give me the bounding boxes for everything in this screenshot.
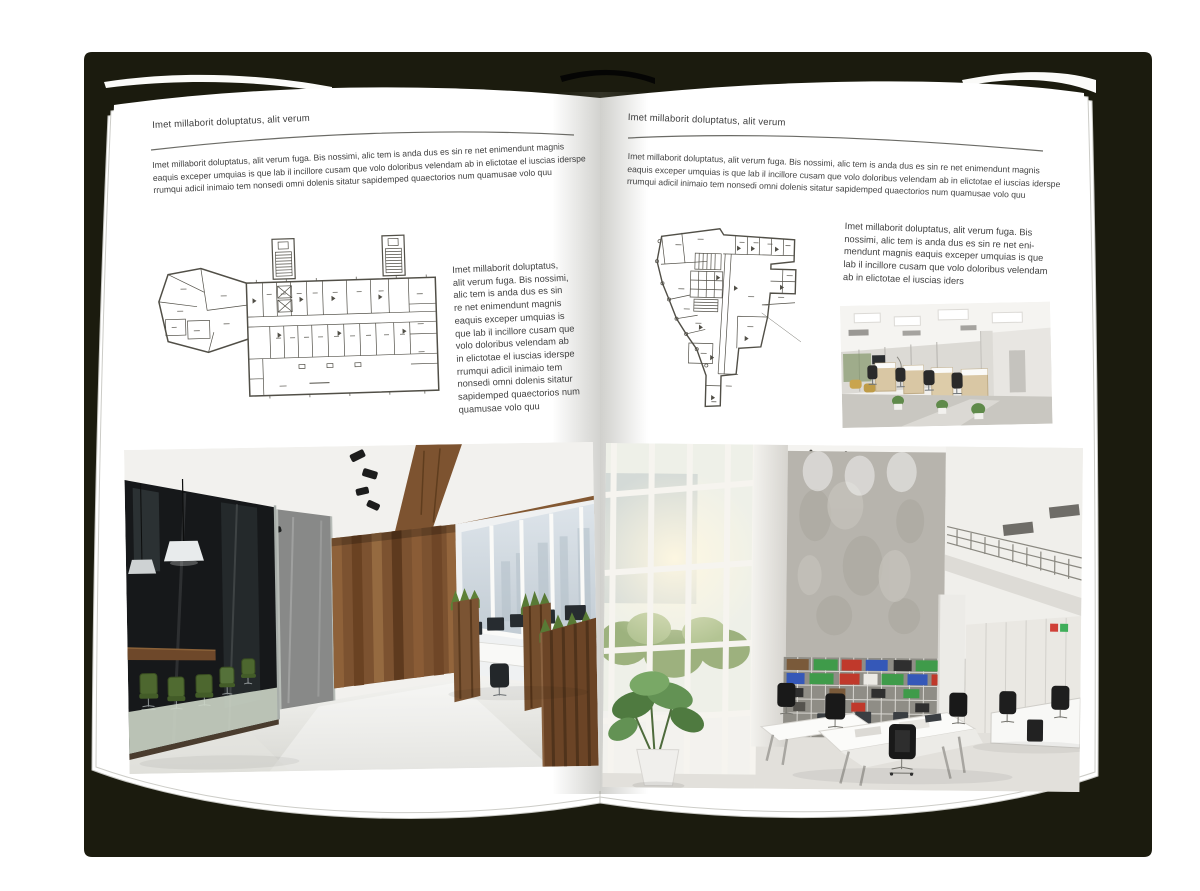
right-large-office-photo [602,443,1083,792]
left-office-photo [124,442,599,774]
right-small-office-photo [840,302,1053,428]
wood-wall [331,524,458,688]
magazine-spread-mockup: Imet millaborit doluptatus, alit verum I… [0,0,1200,891]
right-floor-plan-drawing [647,224,806,416]
left-floor-plan-drawing [155,233,450,412]
left-page-side-text: Imet millaborit doluptatus, alit verum f… [452,257,609,416]
first-aid-sign [1050,624,1058,632]
concrete-wall [786,451,946,659]
right-page-side-text: Imet millaborit doluptatus, alit verum f… [843,220,1060,291]
